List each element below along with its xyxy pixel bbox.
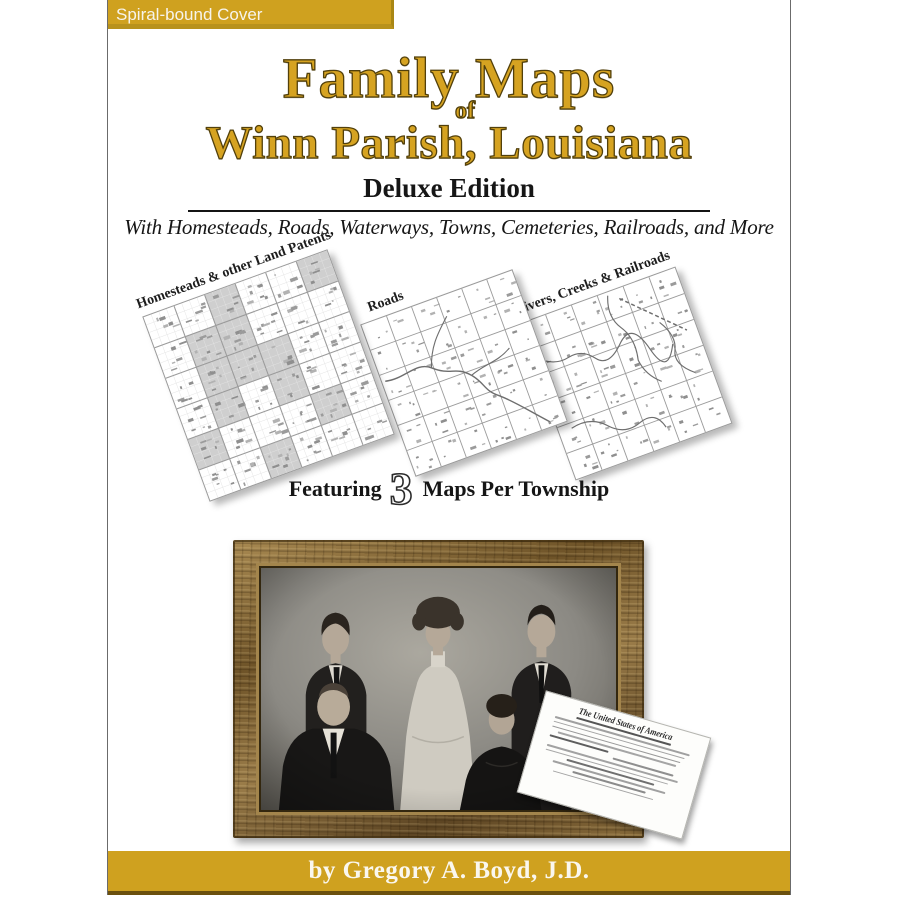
featuring-prefix: Featuring [289,476,382,501]
author-text: by Gregory A. Boyd, J.D. [309,857,590,884]
cover-right-edge [790,0,791,895]
title-parish: Winn Parish, Louisiana [108,119,790,168]
subtitle: With Homesteads, Roads, Waterways, Towns… [108,215,790,240]
title-divider [188,210,710,212]
title-of: of [124,99,806,123]
featuring-suffix: Maps Per Township [423,476,610,501]
map-homesteads-thumbnail: Homesteads & other Land Patents [142,249,394,501]
edition-label: Deluxe Edition [108,173,790,204]
title-block: Family Maps of Winn Parish, Louisiana De… [108,50,790,240]
spiral-binding-label: Spiral-bound Cover [108,0,394,29]
spiral-binding-label-text: Spiral-bound Cover [116,5,262,24]
featuring-line: Featuring 3 Maps Per Township [108,476,790,502]
book-cover-page: Spiral-bound Cover Family Maps of Winn P… [0,0,900,900]
author-bar: by Gregory A. Boyd, J.D. [108,851,790,895]
